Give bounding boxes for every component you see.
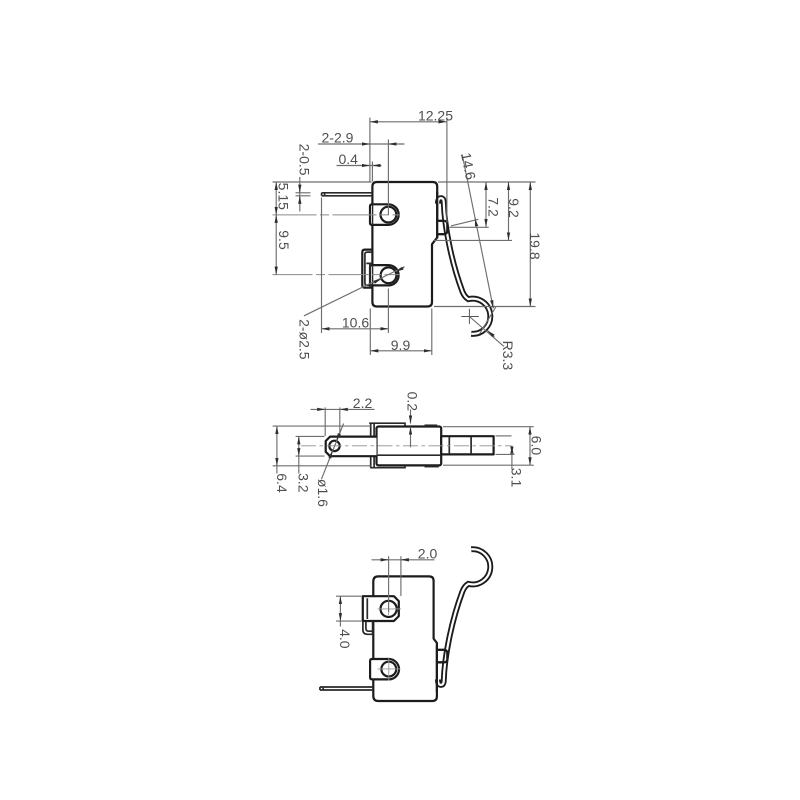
svg-text:3.2: 3.2 (296, 473, 312, 493)
svg-text:0.4: 0.4 (339, 151, 359, 167)
svg-text:9.2: 9.2 (506, 198, 522, 218)
svg-text:4.0: 4.0 (337, 629, 353, 649)
svg-text:9.9: 9.9 (391, 337, 411, 353)
svg-text:2-0.5: 2-0.5 (296, 144, 312, 176)
svg-text:6.0: 6.0 (528, 436, 544, 456)
svg-text:0.2: 0.2 (405, 392, 421, 412)
svg-text:10.6: 10.6 (342, 314, 369, 330)
svg-text:7.2: 7.2 (486, 197, 502, 217)
svg-text:19.8: 19.8 (527, 232, 543, 259)
svg-text:2.2: 2.2 (353, 395, 373, 411)
svg-text:5.15: 5.15 (276, 183, 292, 210)
svg-text:2-ø2.5: 2-ø2.5 (297, 319, 313, 360)
svg-text:2.0: 2.0 (418, 546, 438, 562)
svg-text:3.1: 3.1 (509, 468, 525, 488)
svg-text:2-2.9: 2-2.9 (322, 129, 354, 145)
svg-text:6.4: 6.4 (274, 473, 290, 493)
svg-text:ø1.6: ø1.6 (315, 479, 331, 507)
svg-text:9.5: 9.5 (276, 230, 292, 250)
svg-text:R3.3: R3.3 (500, 341, 516, 371)
svg-text:12.25: 12.25 (418, 107, 453, 123)
